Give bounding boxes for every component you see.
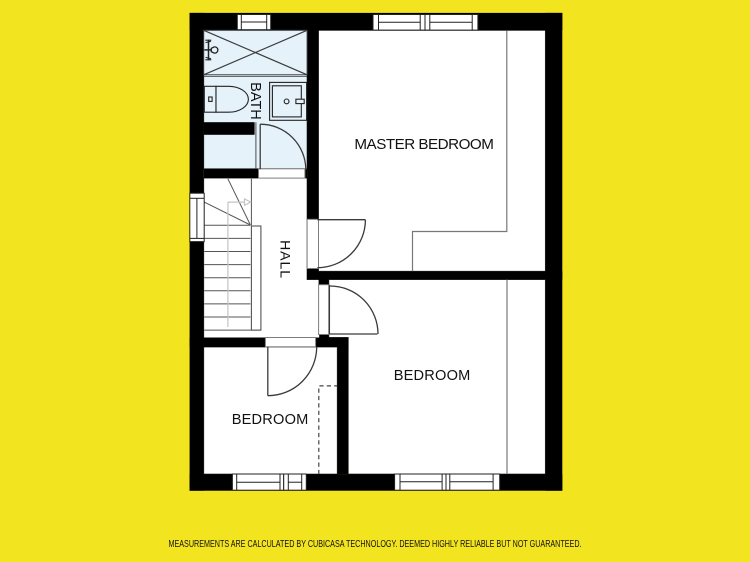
svg-text:BEDROOM: BEDROOM bbox=[232, 412, 309, 428]
svg-text:HALL: HALL bbox=[277, 240, 293, 279]
svg-text:MEASUREMENTS ARE CALCULATED BY: MEASUREMENTS ARE CALCULATED BY CUBICASA … bbox=[168, 538, 581, 549]
svg-text:BATH: BATH bbox=[247, 82, 263, 120]
svg-text:MASTER BEDROOM: MASTER BEDROOM bbox=[354, 136, 493, 153]
svg-text:BEDROOM: BEDROOM bbox=[394, 368, 471, 384]
